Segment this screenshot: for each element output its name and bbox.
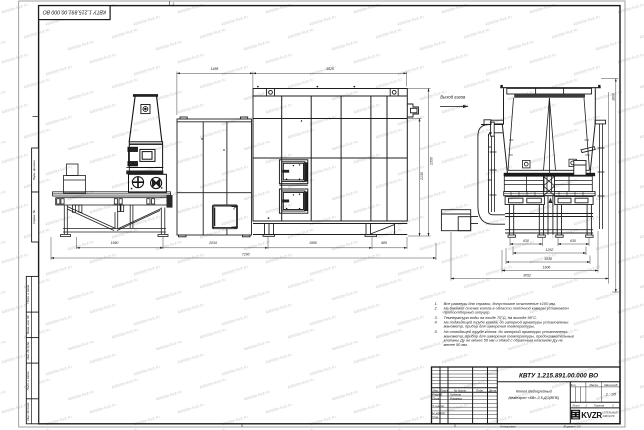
svg-text:Инв. № дубл.: Инв. № дубл. xyxy=(26,341,30,360)
svg-text:манометр, прибор для измерения: манометр, прибор для измерения температу… xyxy=(444,324,535,329)
svg-text:Копировал: Копировал xyxy=(500,424,516,428)
svg-text:Взам. инв. №: Взам. инв. № xyxy=(26,315,30,334)
svg-text:2135: 2135 xyxy=(420,172,424,181)
svg-text:2.: 2. xyxy=(434,305,438,310)
svg-text:пробоотборный штуцер.: пробоотборный штуцер. xyxy=(444,310,491,315)
svg-text:1485: 1485 xyxy=(211,67,219,71)
svg-text:КВТУ 1.215.891.00.000 ВО: КВТУ 1.215.891.00.000 ВО xyxy=(519,373,598,380)
svg-text:Перв. примен.: Перв. примен. xyxy=(32,160,36,181)
svg-text:Т. контр.: Т. контр. xyxy=(432,404,445,408)
svg-text:2: 2 xyxy=(173,2,175,6)
svg-text:1560: 1560 xyxy=(111,241,119,245)
svg-text:3025: 3025 xyxy=(326,67,334,71)
svg-text:4.: 4. xyxy=(435,319,438,324)
svg-text:Подп.: Подп. xyxy=(476,388,484,392)
svg-text:Листов: Листов xyxy=(593,403,605,407)
svg-text:7200: 7200 xyxy=(242,252,250,256)
svg-text:Формат А2: Формат А2 xyxy=(564,424,581,428)
svg-text:KVZR: KVZR xyxy=(581,411,602,420)
svg-text:Утв.: Утв. xyxy=(432,415,439,419)
svg-text:5.: 5. xyxy=(435,329,438,334)
svg-text:1262: 1262 xyxy=(546,248,554,252)
svg-text:3052: 3052 xyxy=(523,274,531,278)
svg-text:КВТУ 1.215.891.00.000 ВО: КВТУ 1.215.891.00.000 ВО xyxy=(43,8,106,14)
svg-text:Лит.: Лит. xyxy=(569,383,577,387)
svg-text:Масса: Масса xyxy=(590,383,599,387)
svg-text:ЗАВОД РФ: ЗАВОД РФ xyxy=(603,415,615,418)
svg-text:Heatexpert «КВ»-2,5-ДО(ВПК): Heatexpert «КВ»-2,5-ДО(ВПК) xyxy=(508,396,559,400)
svg-text:Подп. и дата: Подп. и дата xyxy=(26,284,30,303)
svg-text:685: 685 xyxy=(381,241,387,245)
svg-text:1950: 1950 xyxy=(309,241,317,245)
svg-text:Масштаб: Масштаб xyxy=(604,383,617,387)
svg-text:630: 630 xyxy=(570,239,576,243)
svg-text:Котел Водогрейный: Котел Водогрейный xyxy=(516,390,552,394)
svg-text:Лист: Лист xyxy=(571,403,580,407)
svg-text:2800: 2800 xyxy=(612,93,616,102)
svg-text:Инв. № подл.: Инв. № подл. xyxy=(26,402,30,421)
svg-text:2350: 2350 xyxy=(429,157,433,166)
svg-text:КОТЕЛЬНЫЙ: КОТЕЛЬНЫЙ xyxy=(603,411,618,414)
svg-text:1538: 1538 xyxy=(544,257,552,261)
svg-text:менее 50 мм.: менее 50 мм. xyxy=(444,342,468,347)
svg-text:2034: 2034 xyxy=(208,241,217,245)
svg-text:1 : 20: 1 : 20 xyxy=(606,392,617,397)
svg-text:2: 2 xyxy=(611,403,614,407)
svg-text:Подп. и дата: Подп. и дата xyxy=(26,371,30,390)
svg-text:Романов: Романов xyxy=(450,396,462,400)
svg-text:Пров.: Пров. xyxy=(432,396,440,400)
svg-text:Выход газов: Выход газов xyxy=(440,94,466,99)
svg-text:Дата: Дата xyxy=(488,388,497,392)
svg-text:1906: 1906 xyxy=(543,266,551,270)
svg-text:630: 630 xyxy=(523,239,529,243)
svg-text:Справ. №: Справ. № xyxy=(32,209,36,224)
